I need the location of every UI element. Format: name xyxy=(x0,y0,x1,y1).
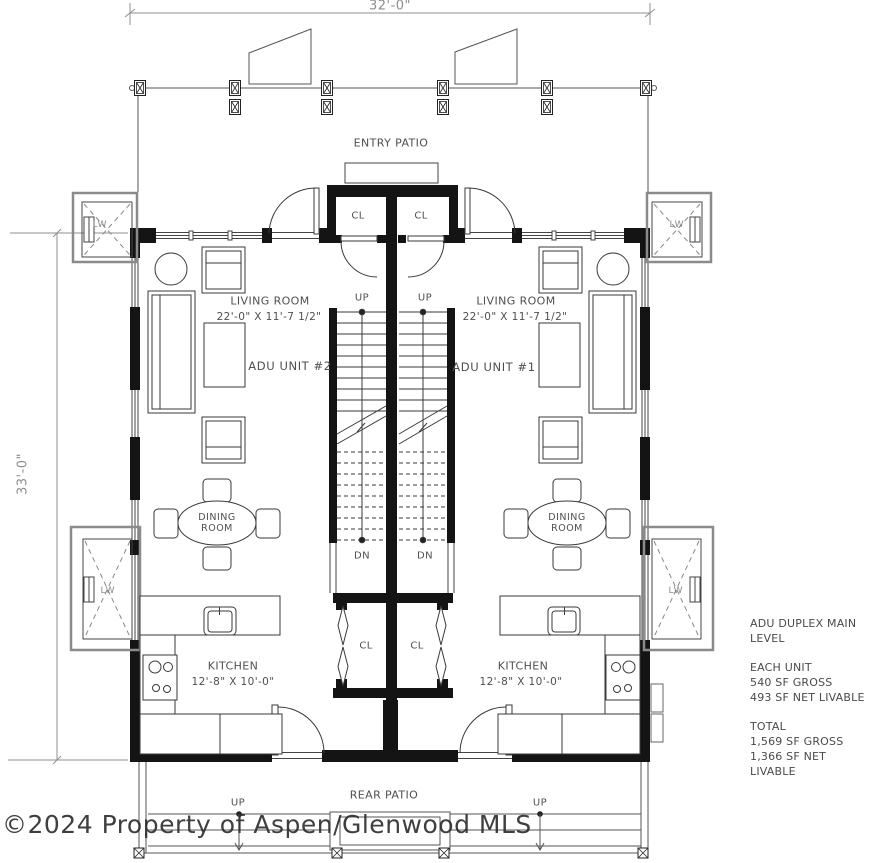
kitchen-label-unit1: KITCHEN xyxy=(498,660,548,673)
sofa xyxy=(148,291,195,413)
notes-total-header: TOTAL xyxy=(750,719,874,734)
coffee-table xyxy=(204,323,245,387)
watermark: ©2024 Property of Aspen/Glenwood MLS xyxy=(2,810,532,839)
dining-line1: DINING xyxy=(198,512,236,523)
kitchen-counters xyxy=(140,596,282,754)
dining-line1: DINING xyxy=(548,512,586,523)
unit1-label: ADU UNIT #1 xyxy=(452,360,535,374)
living-room-size-unit1: 22'-0" X 11'-7 1/2" xyxy=(463,311,568,323)
closet-label-top-unit2: CL xyxy=(351,211,364,222)
dining-room-label-unit1: DINING ROOM xyxy=(548,512,586,534)
plan-notes: ADU DUPLEX MAIN LEVEL EACH UNIT 540 SF G… xyxy=(750,616,874,793)
stove xyxy=(606,655,640,700)
living-room-label-unit1: LIVING ROOM xyxy=(476,295,555,308)
patio-stair-arrow-right xyxy=(536,811,544,850)
closet-door-unit2 xyxy=(341,236,377,277)
up-label-patio-left: UP xyxy=(231,798,245,809)
unit2-label: ADU UNIT #2 xyxy=(248,359,331,373)
side-table xyxy=(597,253,629,285)
coffee-table xyxy=(539,323,580,387)
window-well-label-bottom-left: LW xyxy=(100,586,115,596)
closet-door-unit1 xyxy=(408,236,444,277)
closet-label-lower-unit1: CL xyxy=(410,641,423,652)
entry-door-unit1 xyxy=(465,188,515,234)
stair-unit1 xyxy=(399,309,447,543)
overall-width-dimension: 32'-0" xyxy=(369,0,411,14)
side-table xyxy=(155,253,187,285)
entry-patio xyxy=(130,29,657,192)
entry-patio-label: ENTRY PATIO xyxy=(354,137,429,150)
floor-plan-drawing xyxy=(0,0,874,863)
kitchen-size-unit1: 12'-8" X 10'-0" xyxy=(480,676,563,688)
down-label-unit1: DN xyxy=(417,551,433,562)
stove xyxy=(143,655,177,700)
notes-total-net: 1,366 SF NET LIVABLE xyxy=(750,749,874,779)
kitchen-counters xyxy=(498,596,640,754)
dining-room-label-unit2: DINING ROOM xyxy=(198,512,236,534)
armchair-bottom xyxy=(202,417,245,463)
dining-line2: ROOM xyxy=(548,523,586,534)
kitchen-label-unit2: KITCHEN xyxy=(208,660,258,673)
notes-title-line1: ADU DUPLEX MAIN xyxy=(750,616,874,631)
dining-line2: ROOM xyxy=(198,523,236,534)
armchair-top xyxy=(539,247,582,293)
up-label-patio-right: UP xyxy=(533,798,547,809)
up-label-unit2: UP xyxy=(355,293,369,304)
exterior-equipment xyxy=(651,714,663,742)
sofa xyxy=(589,291,636,413)
notes-each-unit-header: EACH UNIT xyxy=(750,660,874,675)
armchair-top xyxy=(202,247,245,293)
living-room-label-unit2: LIVING ROOM xyxy=(230,295,309,308)
exterior-equipment xyxy=(651,684,663,712)
living-room-size-unit2: 22'-0" X 11'-7 1/2" xyxy=(217,311,322,323)
notes-each-unit-net: 493 SF NET LIVABLE xyxy=(750,690,874,705)
floor-plan-page: 32'-0" 33'-0" ENTRY PATIO CL CL UP UP DN… xyxy=(0,0,874,863)
entry-door-unit2 xyxy=(269,188,319,234)
window-well-label-top-left: LW xyxy=(92,220,107,230)
stair-unit2 xyxy=(337,309,386,543)
rear-patio-label: REAR PATIO xyxy=(350,789,418,802)
notes-total-gross: 1,569 SF GROSS xyxy=(750,734,874,749)
down-label-unit2: DN xyxy=(354,551,370,562)
up-label-unit1: UP xyxy=(418,293,432,304)
window-well-label-bottom-right: LW xyxy=(668,586,683,596)
closet-label-top-unit1: CL xyxy=(414,211,427,222)
overall-height-dimension: 33'-0" xyxy=(16,453,31,495)
closet-label-lower-unit2: CL xyxy=(359,641,372,652)
armchair-bottom xyxy=(539,417,582,463)
kitchen-size-unit2: 12'-8" X 10'-0" xyxy=(192,676,275,688)
notes-title-line2: LEVEL xyxy=(750,631,874,646)
entry-patio-posts xyxy=(135,81,652,115)
rear-patio xyxy=(139,762,648,853)
window-well-label-top-right: LW xyxy=(669,220,684,230)
notes-each-unit-gross: 540 SF GROSS xyxy=(750,675,874,690)
